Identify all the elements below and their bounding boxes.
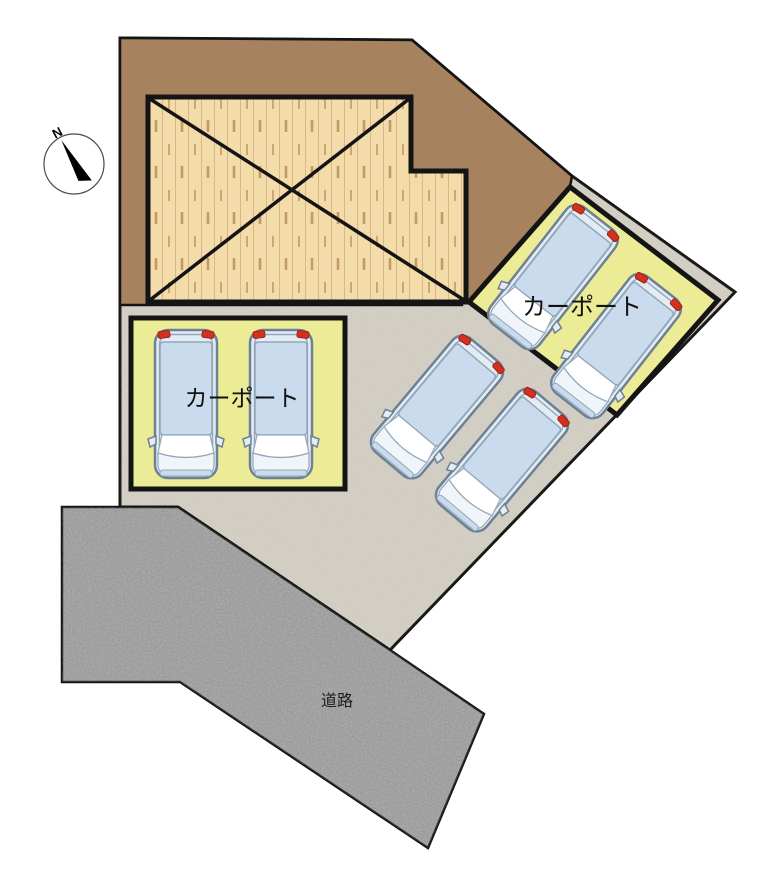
site-plan: カーポート カーポート 道路 N xyxy=(0,0,768,891)
carport-left-label: カーポート xyxy=(185,385,300,411)
compass: N xyxy=(44,122,104,194)
road-label: 道路 xyxy=(321,692,353,710)
carport-right-label: カーポート xyxy=(522,294,642,321)
